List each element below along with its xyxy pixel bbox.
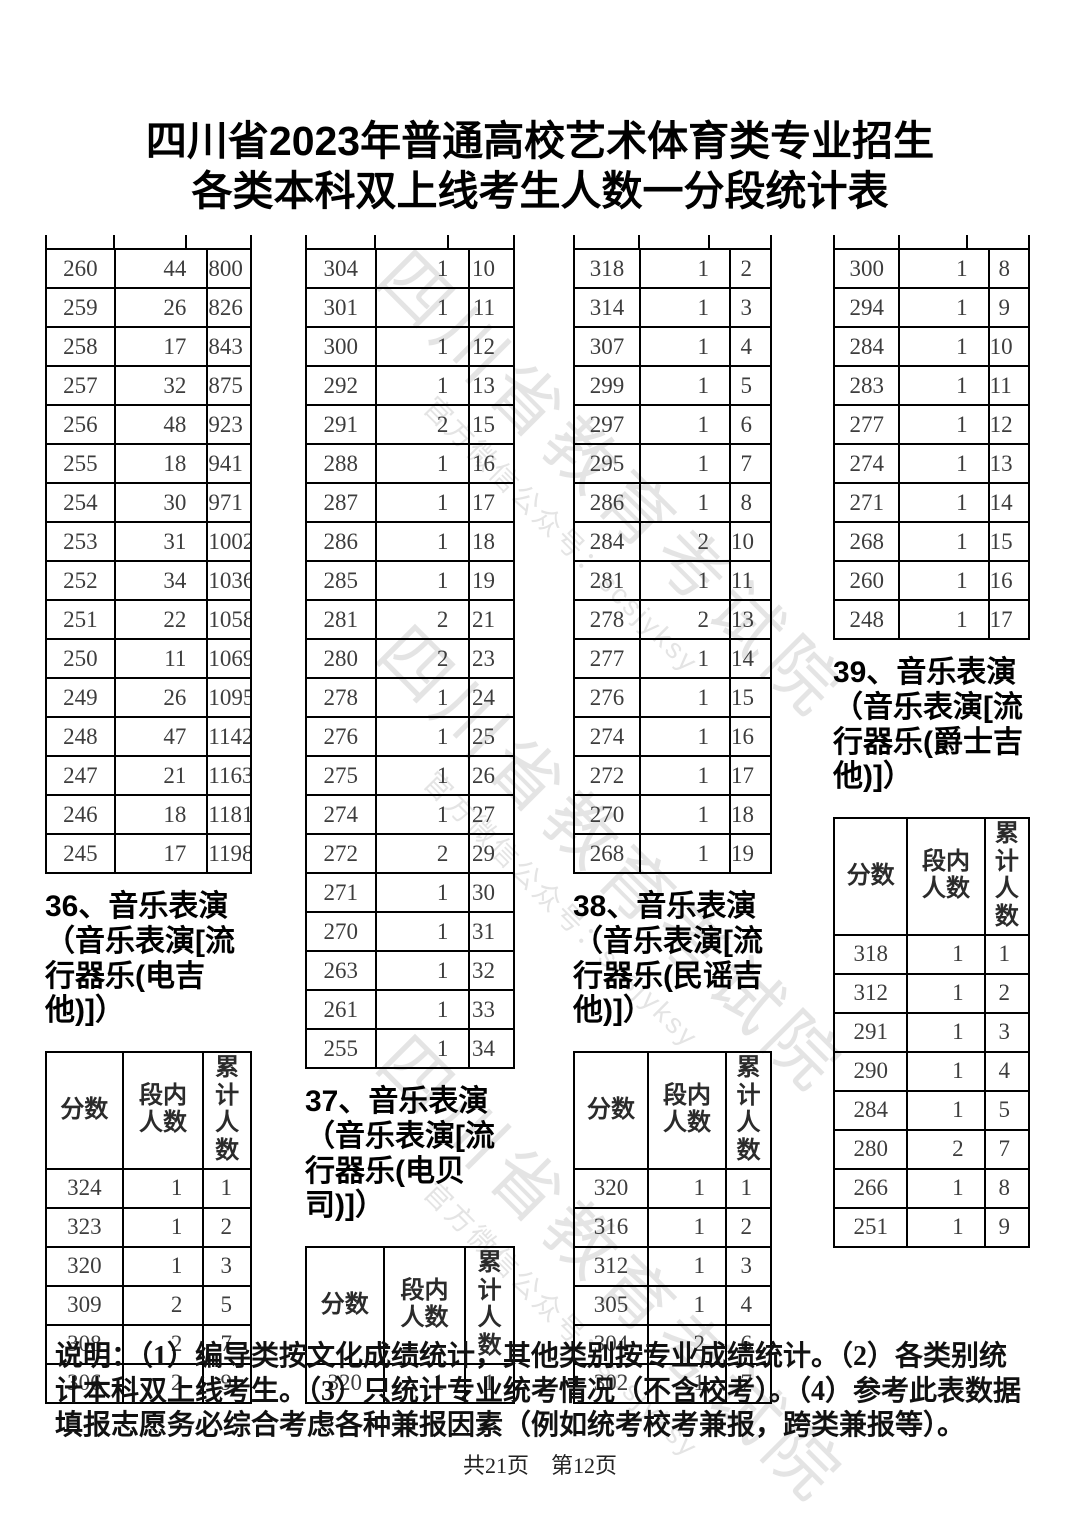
table-row: 301111	[306, 288, 514, 327]
table-cell: 14	[989, 483, 1029, 522]
table-cell: 2	[730, 249, 771, 288]
table-cell: 1	[648, 1286, 726, 1325]
table-cell: 270	[306, 912, 376, 951]
table-row: 277114	[574, 639, 771, 678]
table-cell: 251	[834, 1208, 907, 1247]
table-cell: 26	[115, 288, 208, 327]
table-row: 252341036	[46, 561, 251, 600]
table-cell: 1	[899, 600, 988, 639]
table-cell: 17	[115, 327, 208, 366]
table-cell: 1	[376, 327, 470, 366]
column-2: 3041103011113001122921132912152881162871…	[305, 235, 515, 1404]
table-row: 268119	[574, 834, 771, 873]
table-cut-top	[833, 235, 1030, 248]
table-cell: 1036	[207, 561, 251, 600]
table-row: 284210	[574, 522, 771, 561]
page-title-line1: 四川省2023年普通高校艺术体育类专业招生	[146, 118, 934, 164]
table-row: 26044800	[46, 249, 251, 288]
table-row: 261133	[306, 990, 514, 1029]
table-cell: 1002	[207, 522, 251, 561]
table-cell: 312	[834, 974, 907, 1013]
table-cell: 17	[730, 756, 771, 795]
table-cell: 314	[574, 288, 640, 327]
table-cell: 307	[574, 327, 640, 366]
table-cell: 1	[899, 444, 988, 483]
table-cell: 254	[46, 483, 115, 522]
table-cell: 13	[469, 366, 514, 405]
table-cut-top	[45, 235, 252, 248]
table-cell: 17	[469, 483, 514, 522]
table-cell: 21	[469, 600, 514, 639]
table-cell: 25	[469, 717, 514, 756]
table-row: 271114	[834, 483, 1029, 522]
table-cell: 1	[640, 327, 730, 366]
table-cell: 245	[46, 834, 115, 873]
table-row: 31612	[574, 1208, 771, 1247]
page-title: 四川省2023年普通高校艺术体育类专业招生各类本科双上线考生人数一分段统计表	[0, 116, 1080, 216]
cumulative-header-cell: 累计人数	[726, 1052, 771, 1168]
table-cell: 318	[834, 935, 907, 974]
table-cell: 291	[306, 405, 376, 444]
table-row: 246181181	[46, 795, 251, 834]
table-cell: 1	[376, 795, 470, 834]
table-row: 29915	[574, 366, 771, 405]
table-row: 25732875	[46, 366, 251, 405]
table-cell: 261	[306, 990, 376, 1029]
table-cell: 11	[730, 561, 771, 600]
table-cell: 11	[989, 366, 1029, 405]
table-cell: 16	[989, 561, 1029, 600]
section-heading-39: 39、音乐表演（音乐表演[流行器乐(爵士吉他)]）	[833, 656, 1030, 795]
in-band-header-cell: 段内人数	[907, 818, 984, 934]
table-cell: 300	[834, 249, 899, 288]
table-cell: 1	[123, 1247, 204, 1286]
table-row: 28618	[574, 483, 771, 522]
table-cell: 1	[899, 405, 988, 444]
table-cell: 1	[899, 366, 988, 405]
continuation-table-1: 2604480025926826258178432573287525648923…	[45, 248, 252, 874]
table-cell: 14	[730, 639, 771, 678]
table-cell: 301	[306, 288, 376, 327]
table-row: 29113	[834, 1013, 1029, 1052]
table-cell: 286	[574, 483, 640, 522]
table-cell: 24	[469, 678, 514, 717]
table-cell: 21	[115, 756, 208, 795]
table-row: 26618	[834, 1169, 1029, 1208]
continuation-table-3: 3181231413307142991529716295172861828421…	[573, 248, 772, 874]
table-row: 31812	[574, 249, 771, 288]
table-cell: 2	[123, 1286, 204, 1325]
table-cell: 252	[46, 561, 115, 600]
table-cell: 923	[207, 405, 251, 444]
table-cell: 1	[376, 561, 470, 600]
table-cell: 268	[574, 834, 640, 873]
table-cell: 323	[46, 1208, 123, 1247]
table-cell: 5	[730, 366, 771, 405]
table-row: 31212	[834, 974, 1029, 1013]
table-cell: 290	[834, 1052, 907, 1091]
table-cell: 255	[46, 444, 115, 483]
table-cell: 2	[376, 834, 470, 873]
table-row: 251221058	[46, 600, 251, 639]
table-cell: 1	[376, 444, 470, 483]
table-cell: 284	[834, 1091, 907, 1130]
table-cell: 1069	[207, 639, 251, 678]
table-cell: 7	[985, 1130, 1029, 1169]
table-cell: 1	[376, 912, 470, 951]
table-cell: 1	[640, 483, 730, 522]
table-cell: 1	[907, 1013, 984, 1052]
table-cell: 256	[46, 405, 115, 444]
table-row: 31811	[834, 935, 1029, 974]
table-cell: 1	[985, 935, 1029, 974]
table-row: 268115	[834, 522, 1029, 561]
table-row: 280223	[306, 639, 514, 678]
table-cell: 16	[730, 717, 771, 756]
table-cell: 281	[306, 600, 376, 639]
table-cell: 1	[907, 935, 984, 974]
table-cell: 1	[123, 1208, 204, 1247]
table-row: 281111	[574, 561, 771, 600]
table-cell: 246	[46, 795, 115, 834]
table-row: 255134	[306, 1029, 514, 1068]
table-cell: 274	[306, 795, 376, 834]
table-header-row: 分数 段内人数 累计人数	[574, 1052, 771, 1168]
table-cell: 260	[46, 249, 115, 288]
table-row: 286118	[306, 522, 514, 561]
column-1: 2604480025926826258178432573287525648923…	[45, 235, 252, 1404]
table-cell: 7	[730, 444, 771, 483]
table-cell: 10	[730, 522, 771, 561]
table-cell: 276	[306, 717, 376, 756]
table-row: 270118	[574, 795, 771, 834]
table-cell: 29	[469, 834, 514, 873]
table-cell: 4	[985, 1052, 1029, 1091]
table-cell: 2	[376, 405, 470, 444]
section-heading-38: 38、音乐表演（音乐表演[流行器乐(民谣吉他)]）	[573, 890, 772, 1029]
table-cell: 285	[306, 561, 376, 600]
table-cell: 10	[989, 327, 1029, 366]
table-cell: 1	[648, 1208, 726, 1247]
table-cell: 294	[834, 288, 899, 327]
table-row: 248117	[834, 600, 1029, 639]
table-cell: 272	[306, 834, 376, 873]
table-cell: 309	[46, 1286, 123, 1325]
table-cell: 9	[989, 288, 1029, 327]
table-cell: 1	[640, 678, 730, 717]
table-cell: 3	[203, 1247, 251, 1286]
table-cell: 1	[899, 249, 988, 288]
table-cell: 30	[469, 873, 514, 912]
table-row: 31213	[574, 1247, 771, 1286]
table-cell: 32	[115, 366, 208, 405]
table-cell: 800	[207, 249, 251, 288]
table-cell: 12	[989, 405, 1029, 444]
table-cell: 13	[989, 444, 1029, 483]
table-row: 285119	[306, 561, 514, 600]
table-row: 248471142	[46, 717, 251, 756]
table-row: 28415	[834, 1091, 1029, 1130]
table-cell: 1	[907, 1091, 984, 1130]
table-row: 32013	[46, 1247, 251, 1286]
table-cell: 1	[640, 405, 730, 444]
table-cut-top	[573, 235, 772, 248]
table-cell: 1	[907, 1208, 984, 1247]
table-cell: 249	[46, 678, 115, 717]
table-row: 31413	[574, 288, 771, 327]
table-cell: 15	[469, 405, 514, 444]
table-row: 291215	[306, 405, 514, 444]
table-row: 283111	[834, 366, 1029, 405]
table-cell: 15	[989, 522, 1029, 561]
table-cell: 280	[306, 639, 376, 678]
table-cell: 320	[46, 1247, 123, 1286]
table-cell: 12	[469, 327, 514, 366]
table-cell: 2	[376, 639, 470, 678]
page-title-line2: 各类本科双上线考生人数一分段统计表	[192, 168, 889, 214]
table-cell: 1	[648, 1169, 726, 1208]
table-cell: 34	[115, 561, 208, 600]
table-cell: 1	[203, 1169, 251, 1208]
table-cell: 292	[306, 366, 376, 405]
table-cell: 15	[730, 678, 771, 717]
table-cell: 31	[469, 912, 514, 951]
table-cell: 1163	[207, 756, 251, 795]
table-cell: 30	[115, 483, 208, 522]
table-cell: 278	[574, 600, 640, 639]
table-row: 25119	[834, 1208, 1029, 1247]
table-cell: 284	[834, 327, 899, 366]
table-cell: 1	[640, 795, 730, 834]
table-cell: 287	[306, 483, 376, 522]
table-cell: 3	[985, 1013, 1029, 1052]
table-cell: 2	[640, 600, 730, 639]
table-cell: 1	[640, 561, 730, 600]
table-cell: 250	[46, 639, 115, 678]
table-cell: 1	[376, 483, 470, 522]
table-row: 32411	[46, 1169, 251, 1208]
section-heading-37: 37、音乐表演（音乐表演[流行器乐(电贝司)]）	[305, 1085, 515, 1224]
table-cell: 1	[899, 327, 988, 366]
table-cell: 1	[640, 288, 730, 327]
table-cell: 286	[306, 522, 376, 561]
table-row: 32312	[46, 1208, 251, 1247]
table-cell: 6	[730, 405, 771, 444]
table-cell: 295	[574, 444, 640, 483]
table-cell: 1	[123, 1169, 204, 1208]
table-cell: 47	[115, 717, 208, 756]
table-cell: 19	[469, 561, 514, 600]
table-cell: 5	[203, 1286, 251, 1325]
table-row: 274127	[306, 795, 514, 834]
table-cell: 17	[115, 834, 208, 873]
table-cell: 22	[115, 600, 208, 639]
table-cell: 10	[469, 249, 514, 288]
table-cell: 1	[376, 951, 470, 990]
table-cell: 1	[648, 1247, 726, 1286]
table-cell: 18	[730, 795, 771, 834]
table-row: 30018	[834, 249, 1029, 288]
table-row: 30714	[574, 327, 771, 366]
table-cell: 1	[376, 717, 470, 756]
table-row: 271130	[306, 873, 514, 912]
table-cell: 312	[574, 1247, 648, 1286]
table-cell: 1	[907, 1169, 984, 1208]
table-cell: 253	[46, 522, 115, 561]
table-cell: 826	[207, 288, 251, 327]
table-cell: 1	[376, 678, 470, 717]
table-row: 245171198	[46, 834, 251, 873]
cumulative-header-cell: 累计人数	[985, 818, 1029, 934]
table-row: 272117	[574, 756, 771, 795]
table-cell: 271	[834, 483, 899, 522]
continuation-table-4: 3001829419284110283111277112274113271114…	[833, 248, 1030, 640]
table-row: 25648923	[46, 405, 251, 444]
table-cell: 283	[834, 366, 899, 405]
table-cell: 3	[726, 1247, 771, 1286]
in-band-header-cell: 段内人数	[123, 1052, 204, 1168]
table-cell: 26	[469, 756, 514, 795]
table-cell: 843	[207, 327, 251, 366]
table-row: 249261095	[46, 678, 251, 717]
table-cell: 17	[989, 600, 1029, 639]
table-header-row: 分数 段内人数 累计人数	[834, 818, 1029, 934]
table-cell: 1198	[207, 834, 251, 873]
table-cell: 1	[376, 1029, 470, 1068]
table-row: 25926826	[46, 288, 251, 327]
table-cell: 1	[907, 974, 984, 1013]
section-heading-36: 36、音乐表演（音乐表演[流行器乐(电吉他)]）	[45, 890, 252, 1029]
table-cell: 280	[834, 1130, 907, 1169]
table-cell: 18	[469, 522, 514, 561]
column-3: 3181231413307142991529716295172861828421…	[573, 235, 772, 1404]
table-row: 29419	[834, 288, 1029, 327]
table-cell: 284	[574, 522, 640, 561]
table-cell: 4	[730, 327, 771, 366]
table-cell: 274	[834, 444, 899, 483]
section-table-39: 分数 段内人数 累计人数 318113121229113290142841528…	[833, 817, 1030, 1247]
table-header-row: 分数 段内人数 累计人数	[46, 1052, 251, 1168]
page-number: 共21页 第12页	[0, 1448, 1080, 1480]
table-cell: 263	[306, 951, 376, 990]
table-cell: 1	[640, 834, 730, 873]
table-row: 247211163	[46, 756, 251, 795]
table-cell: 2	[376, 600, 470, 639]
table-cell: 1	[376, 756, 470, 795]
table-row: 28027	[834, 1130, 1029, 1169]
table-row: 30514	[574, 1286, 771, 1325]
table-row: 284110	[834, 327, 1029, 366]
table-cell: 2	[203, 1208, 251, 1247]
score-header-cell: 分数	[574, 1052, 648, 1168]
table-cell: 31	[115, 522, 208, 561]
table-row: 276115	[574, 678, 771, 717]
table-cell: 1	[899, 288, 988, 327]
table-row: 277112	[834, 405, 1029, 444]
table-cell: 1	[726, 1169, 771, 1208]
table-cell: 16	[469, 444, 514, 483]
table-cell: 259	[46, 288, 115, 327]
document-page: 四川省2023年普通高校艺术体育类专业招生各类本科双上线考生人数一分段统计表 四…	[0, 0, 1080, 1528]
table-row: 281221	[306, 600, 514, 639]
table-cell: 1	[899, 522, 988, 561]
table-cell: 291	[834, 1013, 907, 1052]
table-cell: 44	[115, 249, 208, 288]
table-cell: 34	[469, 1029, 514, 1068]
table-cell: 277	[834, 405, 899, 444]
table-row: 274116	[574, 717, 771, 756]
table-cell: 1	[376, 873, 470, 912]
table-cut-top	[305, 235, 515, 248]
table-cell: 300	[306, 327, 376, 366]
table-cell: 1	[376, 990, 470, 1029]
table-cell: 1	[907, 1052, 984, 1091]
footnote: 说明：（1）编导类按文化成绩统计，其他类别按专业成绩统计。（2）各类别统计本科双…	[55, 1340, 1033, 1444]
table-cell: 257	[46, 366, 115, 405]
table-cell: 3	[730, 288, 771, 327]
table-cell: 1095	[207, 678, 251, 717]
table-row: 292113	[306, 366, 514, 405]
table-cell: 318	[574, 249, 640, 288]
table-cell: 260	[834, 561, 899, 600]
table-cell: 2	[640, 522, 730, 561]
table-cell: 272	[574, 756, 640, 795]
table-row: 32011	[574, 1169, 771, 1208]
table-cell: 304	[306, 249, 376, 288]
table-cell: 26	[115, 678, 208, 717]
table-cell: 1	[899, 561, 988, 600]
table-cell: 247	[46, 756, 115, 795]
table-row: 275126	[306, 756, 514, 795]
table-cell: 941	[207, 444, 251, 483]
table-cell: 281	[574, 561, 640, 600]
table-cell: 8	[730, 483, 771, 522]
table-cell: 271	[306, 873, 376, 912]
table-cell: 274	[574, 717, 640, 756]
table-cell: 9	[985, 1208, 1029, 1247]
table-cell: 19	[730, 834, 771, 873]
table-row: 300112	[306, 327, 514, 366]
table-cell: 255	[306, 1029, 376, 1068]
table-cell: 33	[469, 990, 514, 1029]
table-cell: 288	[306, 444, 376, 483]
table-row: 288116	[306, 444, 514, 483]
table-cell: 1	[640, 249, 730, 288]
table-row: 287117	[306, 483, 514, 522]
table-cell: 1	[376, 249, 470, 288]
score-header-cell: 分数	[834, 818, 907, 934]
table-cell: 275	[306, 756, 376, 795]
table-row: 25817843	[46, 327, 251, 366]
table-cell: 1	[376, 288, 470, 327]
table-cell: 1	[640, 444, 730, 483]
table-cell: 277	[574, 639, 640, 678]
table-cell: 1	[640, 756, 730, 795]
cumulative-header-cell: 累计人数	[203, 1052, 251, 1168]
continuation-table-2: 3041103011113001122921132912152881162871…	[305, 248, 515, 1069]
table-cell: 18	[115, 795, 208, 834]
table-cell: 324	[46, 1169, 123, 1208]
table-row: 278213	[574, 600, 771, 639]
table-row: 270131	[306, 912, 514, 951]
table-cell: 278	[306, 678, 376, 717]
table-row: 253311002	[46, 522, 251, 561]
table-cell: 299	[574, 366, 640, 405]
table-cell: 316	[574, 1208, 648, 1247]
table-cell: 1142	[207, 717, 251, 756]
table-cell: 11	[115, 639, 208, 678]
table-cell: 32	[469, 951, 514, 990]
